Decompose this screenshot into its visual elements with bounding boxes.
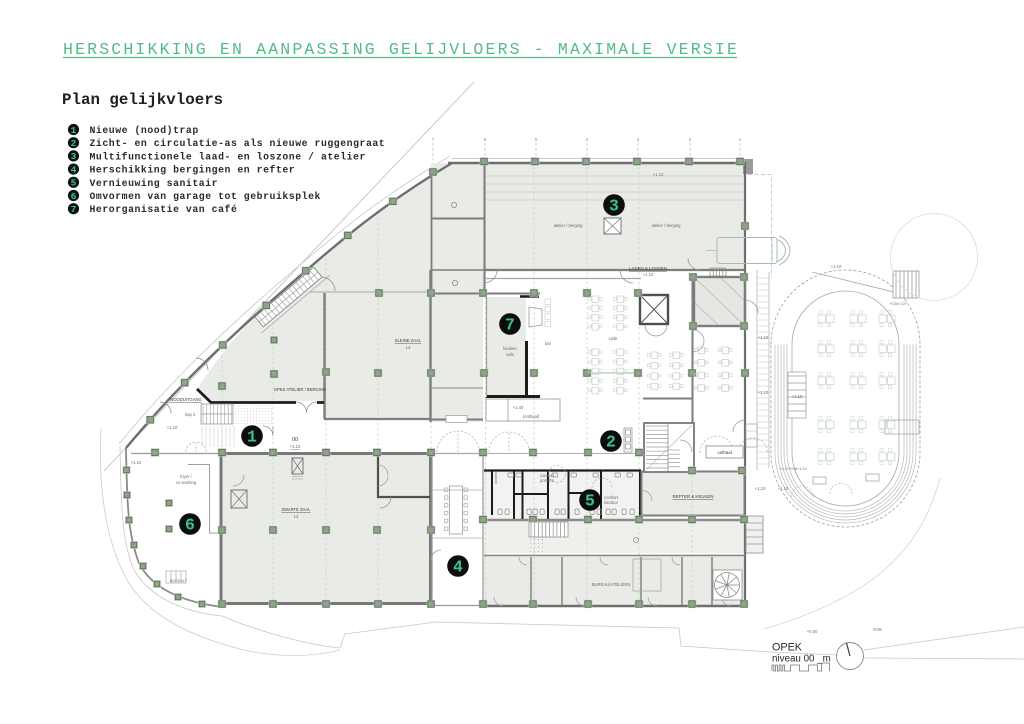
svg-text:NOODUITGANG: NOODUITGANG xyxy=(170,397,202,402)
svg-text:BUREAU/ATELIERS: BUREAU/ATELIERS xyxy=(592,582,631,587)
svg-text:cafe: cafe xyxy=(609,336,618,341)
svg-text:1: 1 xyxy=(247,428,257,447)
svg-text:6: 6 xyxy=(185,516,195,535)
svg-text:13: 13 xyxy=(406,345,411,350)
svg-text:-0.05: -0.05 xyxy=(872,627,882,632)
svg-text:portiers: portiers xyxy=(540,478,554,483)
svg-text:Omvormen van garage tot gebrui: Omvormen van garage tot gebruiksplek xyxy=(90,191,321,202)
svg-text:00: 00 xyxy=(292,437,298,443)
svg-text:3: 3 xyxy=(609,197,619,216)
svg-text:KLEINE ZAAL: KLEINE ZAAL xyxy=(395,338,422,343)
svg-text:7: 7 xyxy=(71,204,77,215)
svg-text:Multifunctionele laad- en losz: Multifunctionele laad- en loszone / atel… xyxy=(90,151,366,162)
svg-text:+1.10: +1.10 xyxy=(131,460,142,465)
svg-text:+1.40: +1.40 xyxy=(513,405,524,410)
svg-text:+1.10: +1.10 xyxy=(643,272,654,277)
svg-text:NOODUIT: NOODUIT xyxy=(170,579,187,583)
svg-text:cafe: cafe xyxy=(506,352,515,357)
svg-text:Vernieuwing sanitair: Vernieuwing sanitair xyxy=(90,178,219,189)
svg-text:Nieuwe (nood)trap: Nieuwe (nood)trap xyxy=(90,125,199,136)
svg-text:atelier / berging: atelier / berging xyxy=(554,223,584,228)
svg-text:2: 2 xyxy=(71,138,77,149)
svg-text:Zicht- en circulatie-as als ni: Zicht- en circulatie-as als nieuwe rugge… xyxy=(90,138,386,149)
svg-text:2: 2 xyxy=(606,433,616,452)
svg-text:LADEN & LOSSEN: LADEN & LOSSEN xyxy=(629,266,667,271)
svg-text:+0.54 0.07: +0.54 0.07 xyxy=(889,302,906,306)
svg-text:+1.10: +1.10 xyxy=(792,394,803,399)
svg-text:HERSCHIKKING EN AANPASSING GEL: HERSCHIKKING EN AANPASSING GELIJVLOERS -… xyxy=(63,40,739,59)
svg-text:lockers: lockers xyxy=(494,472,498,484)
svg-text:+0.00: +0.00 xyxy=(807,629,818,634)
svg-text:Plan gelijkvloers: Plan gelijkvloers xyxy=(62,91,223,109)
svg-text:5: 5 xyxy=(71,178,77,189)
svg-text:ZWARTE ZAAL: ZWARTE ZAAL xyxy=(281,507,311,512)
svg-text:5: 5 xyxy=(585,492,595,511)
svg-text:+1.10: +1.10 xyxy=(831,264,842,269)
svg-text:+1.10: +1.10 xyxy=(290,444,301,449)
svg-text:3: 3 xyxy=(71,151,77,162)
svg-text:1: 1 xyxy=(71,125,77,136)
svg-text:foyer /: foyer / xyxy=(180,474,192,479)
svg-text:4: 4 xyxy=(453,558,463,577)
svg-text:bar: bar xyxy=(545,341,552,346)
svg-text:kantoor: kantoor xyxy=(604,500,619,505)
svg-text:trap 2: trap 2 xyxy=(185,412,196,417)
svg-text:Herorganisatie van café: Herorganisatie van café xyxy=(90,204,238,215)
svg-text:+1.10: +1.10 xyxy=(755,486,766,491)
svg-text:+1.10: +1.10 xyxy=(167,425,178,430)
svg-text:+1.10: +1.10 xyxy=(778,486,789,491)
svg-text:onthaal: onthaal xyxy=(717,450,731,455)
svg-text:+0.27+0.54+1.10: +0.27+0.54+1.10 xyxy=(779,467,806,471)
svg-text:6: 6 xyxy=(71,191,77,202)
svg-text:+1.10: +1.10 xyxy=(653,172,664,177)
svg-text:7: 7 xyxy=(505,316,515,335)
svg-text:OPEK: OPEK xyxy=(772,642,803,654)
svg-text:+1.10: +1.10 xyxy=(758,390,769,395)
svg-text:atelier / berging: atelier / berging xyxy=(652,223,682,228)
svg-text:REFTER & KEUKEN: REFTER & KEUKEN xyxy=(673,494,714,499)
svg-text:co-working: co-working xyxy=(176,480,197,485)
svg-text:(onthaal): (onthaal) xyxy=(523,414,540,419)
svg-text:Herschikking bergingen en reft: Herschikking bergingen en refter xyxy=(90,165,296,176)
svg-text:4: 4 xyxy=(71,164,77,175)
svg-text:keuken: keuken xyxy=(503,346,517,351)
svg-text:+1.10: +1.10 xyxy=(758,335,769,340)
svg-text:OPEK ATELIER / BERGING: OPEK ATELIER / BERGING xyxy=(274,387,327,392)
svg-text:13: 13 xyxy=(294,514,299,519)
